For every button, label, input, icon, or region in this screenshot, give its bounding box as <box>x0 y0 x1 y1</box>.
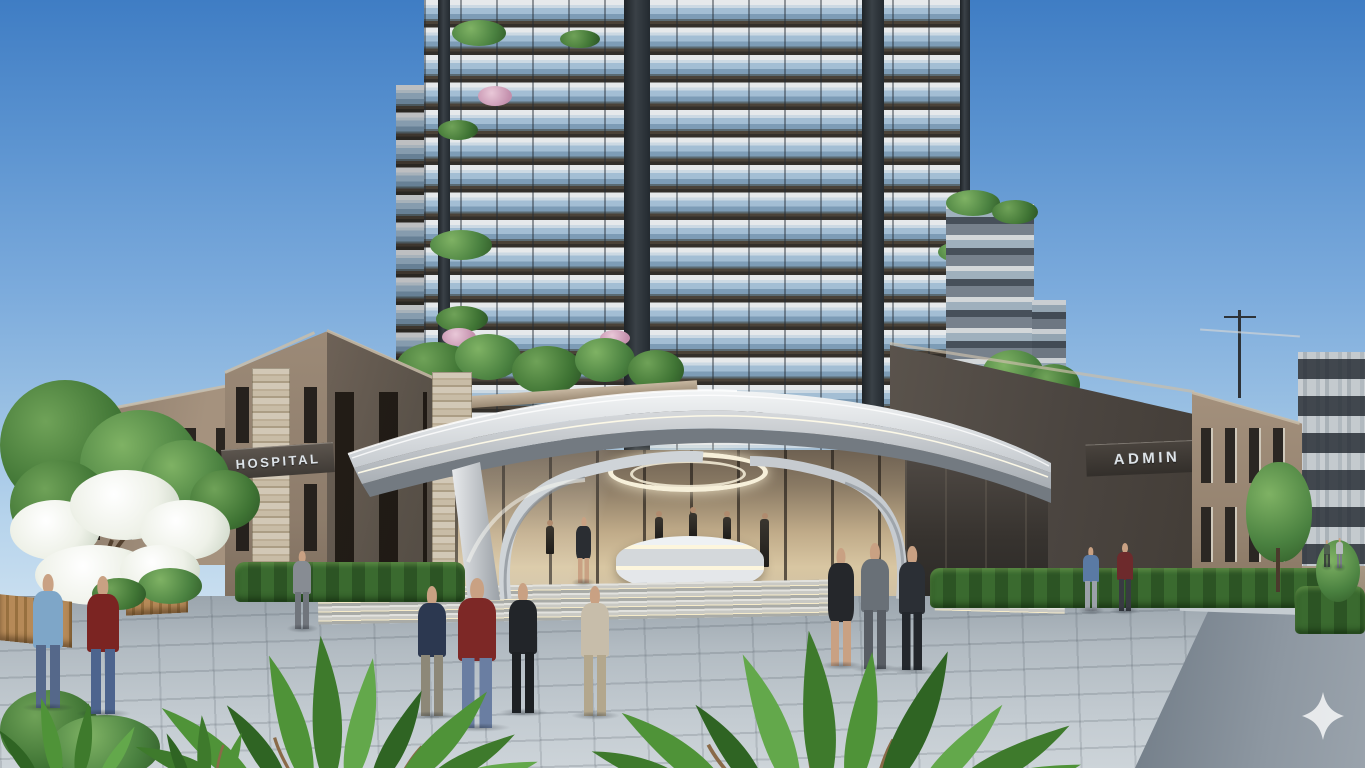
reception-staff <box>723 517 731 539</box>
roof-pole <box>1238 310 1241 398</box>
admin-sign: ADMIN <box>1113 448 1180 468</box>
reception-staff <box>546 526 554 554</box>
person-navy-sweater <box>415 586 449 716</box>
person-maroon-blazer <box>1115 543 1135 611</box>
reception-staff <box>655 517 663 539</box>
balcony-flowers <box>478 86 512 106</box>
person-maroon-jacket <box>454 578 500 728</box>
roof-pole-arm <box>1224 316 1256 318</box>
person-grey-suit <box>291 551 313 629</box>
roof-garden-foliage <box>512 346 582 394</box>
balcony-greenery <box>430 230 492 260</box>
roof-garden-foliage <box>575 338 635 382</box>
ring-chandelier-inner <box>630 460 746 488</box>
person-businessman-dark <box>896 546 928 670</box>
balcony-greenery <box>560 30 600 48</box>
hospital-sign: HOSPITAL <box>235 451 321 472</box>
person-black-outfit <box>506 583 540 713</box>
person-casual-red <box>84 576 122 714</box>
architectural-rendering: HOSPITAL ADMIN <box>0 0 1365 768</box>
person-businessman-grey <box>858 543 892 669</box>
balcony-greenery <box>452 20 506 46</box>
person-casual-blue <box>30 574 66 708</box>
person-distant <box>1323 540 1331 567</box>
roof-railing <box>1200 329 1300 338</box>
person-blue-jacket <box>1082 547 1100 611</box>
rooftop-greenery <box>992 200 1038 224</box>
reception-staff <box>689 513 697 538</box>
person-distant <box>1335 538 1344 568</box>
person-lobby-staff <box>575 517 592 583</box>
shrub <box>138 568 202 604</box>
person-businesswoman <box>826 548 856 666</box>
balcony-greenery <box>438 120 478 140</box>
admin-sign-band: ADMIN <box>1085 439 1208 476</box>
tree-foliage <box>1246 462 1312 562</box>
sparkle-icon <box>1300 690 1346 742</box>
tower-pier <box>862 0 884 462</box>
tree-trunk <box>1276 548 1280 592</box>
person-beige-jacket <box>578 586 612 716</box>
